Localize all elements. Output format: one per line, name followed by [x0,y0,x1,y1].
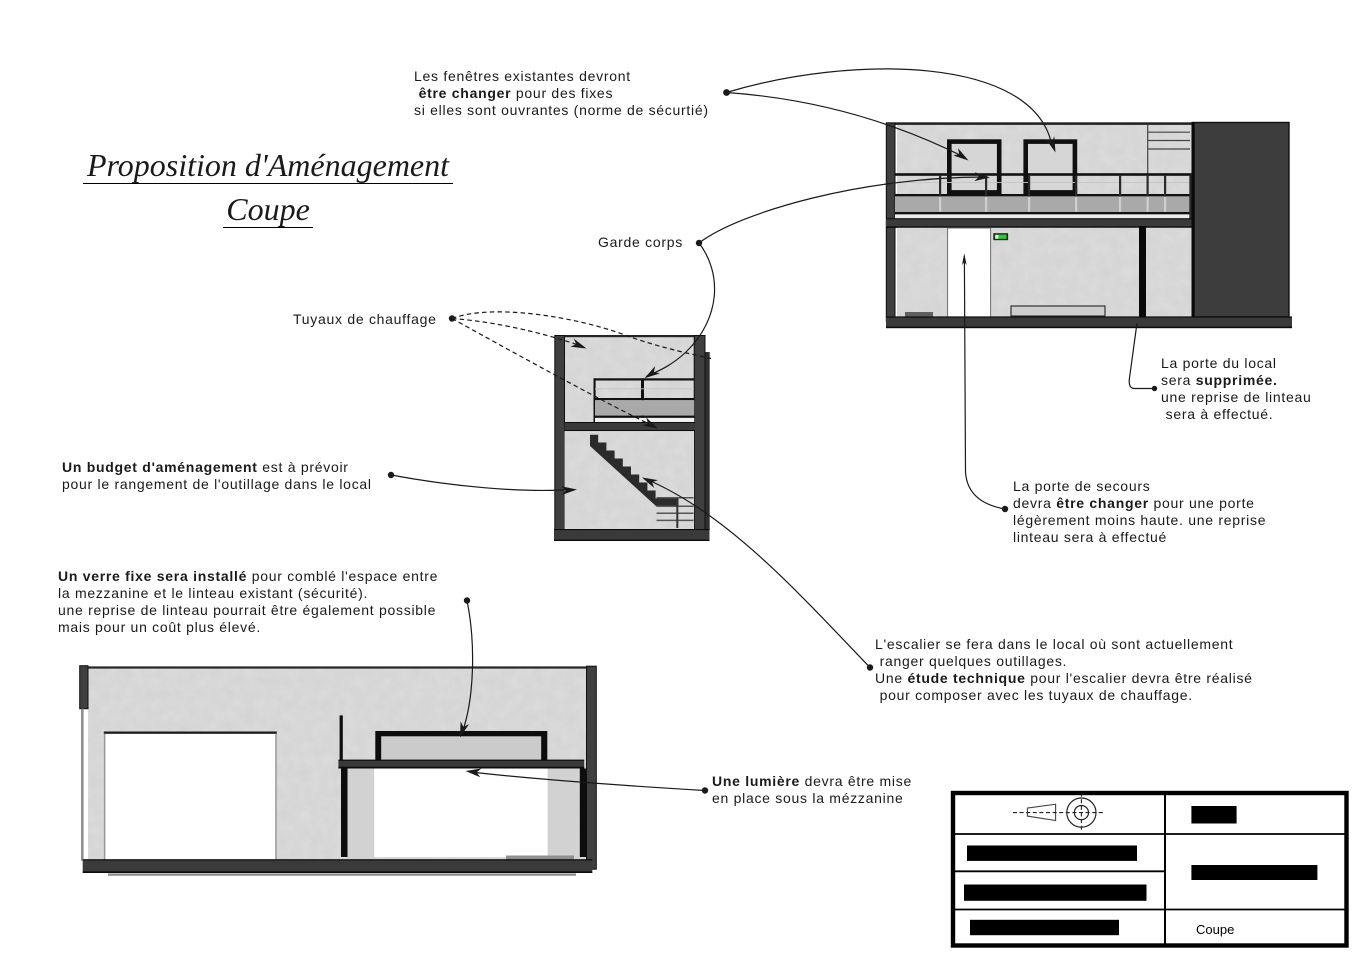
svg-text:Coupe: Coupe [1196,922,1234,937]
